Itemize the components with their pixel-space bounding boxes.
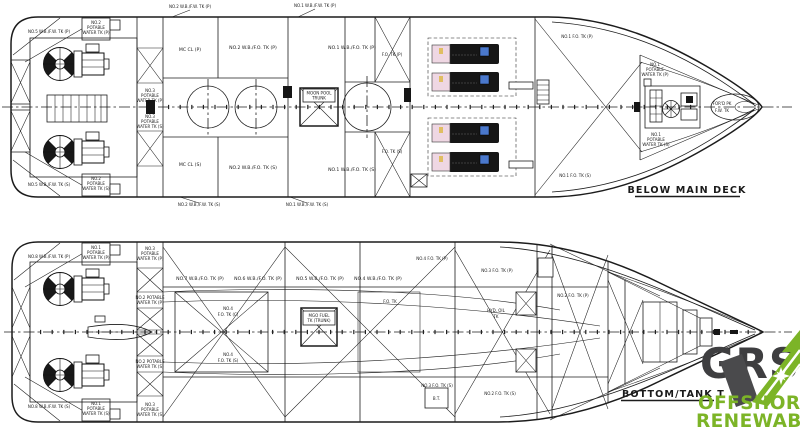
tank-label: NO.2 W.B./F.W. TK (S) — [178, 202, 221, 207]
engine-room — [30, 38, 137, 177]
tank-label: NO.4 W.B./F.O. TK (P) — [354, 276, 402, 282]
tank-label: WATER TK (S) — [136, 364, 164, 369]
tank-label: NO.2 W.B./F.W. TK (P) — [169, 4, 211, 9]
room-label: F.O. TK (S) — [382, 149, 403, 154]
tank-label: NO.3 F.O. TK (P) — [481, 268, 513, 273]
tank-label: TK — [492, 314, 498, 319]
tank-label: FOR'D PK — [713, 101, 732, 106]
room-label: NO.2 W.B./F.O. TK (P) — [229, 45, 277, 51]
tank-label: F.O. TK (S) — [218, 358, 239, 363]
tank-label: F.W. TK — [715, 108, 729, 113]
tank-label: NO.4 — [223, 352, 233, 357]
ladder — [537, 80, 549, 104]
tank-label: WATER TK (S) — [82, 186, 110, 191]
room-label: MC CL (P) — [179, 47, 201, 53]
tank-label: NO.1 F.O. TK (P) — [561, 34, 593, 39]
genset-1 — [432, 44, 499, 64]
room-label: F.O. TK (P) — [382, 52, 403, 57]
moon-pool-label: TRUNK — [311, 96, 326, 101]
tank-label: HYD. OIL — [487, 308, 505, 313]
tank-label: NO.2 F.O. TK (S) — [484, 391, 516, 396]
tank-label: NO.5 W.B./F.W. TK (S) — [28, 182, 71, 187]
grs-tagline-renewables: RENEWABLES — [696, 411, 800, 432]
tank-label: NO.8 W.B./F.W. TK (P) — [28, 254, 70, 259]
tank-label: WATER TK (S) — [136, 412, 164, 417]
tank-label: NO.8 W.B./F.W. TK (S) — [28, 404, 71, 409]
room-label: NO.2 W.B./F.O. TK (S) — [229, 165, 277, 171]
tank-label: NO.1 W.B./F.W. TK (P) — [294, 3, 336, 8]
tank-label: NO.3 F.O. TK (S) — [421, 383, 453, 388]
tank-label: WATER TK (P) — [82, 30, 109, 35]
tank-label: F.O. TK (C) — [218, 312, 239, 317]
tank-label: NO.1 W.B./F.W. TK (S) — [286, 202, 329, 207]
tank-label: NO.7 W.B./F.O. TK (P) — [176, 276, 224, 282]
tank-label: NO.5 W.B./F.O. TK (P) — [296, 276, 344, 282]
tank-label: NO.5 W.B./F.W. TK (P) — [28, 29, 70, 34]
main-engine-stbd — [43, 355, 109, 392]
leader-lines — [172, 9, 315, 203]
room-label: MC CL (S) — [179, 162, 202, 168]
main-engine-port — [43, 44, 109, 81]
room-label: NO.1 W.B./F.O. TK (S) — [328, 167, 376, 173]
genset-3 — [432, 123, 499, 143]
vessel-ga-drawing: NO.2 W.B./F.W. TK (P) NO.1 W.B./F.W. TK … — [0, 0, 800, 434]
windlass-unit — [634, 79, 700, 128]
tank-label: NO.4 — [223, 306, 233, 311]
tank-label: NO.6 W.B./F.O. TK (P) — [234, 276, 282, 282]
tank-label: WATER TK (S) — [136, 124, 164, 129]
grs-logo: GRS OFFSHORE RENEWABLES — [696, 330, 800, 432]
main-engine-stbd — [43, 132, 109, 169]
genset-2 — [432, 72, 499, 92]
mgo-trunk-label: TK (TRUNK) — [306, 318, 331, 323]
tank-label: WATER TK (P) — [136, 256, 163, 261]
main-engine-port — [43, 269, 109, 306]
tank-label: WATER TK (P) — [641, 72, 668, 77]
genset-4 — [432, 152, 499, 172]
tank-label: WATER TK (P) — [82, 255, 109, 260]
bottom-plan: NO.8 W.B./F.W. TK (P) NO.8 W.B./F.W. TK … — [4, 242, 792, 422]
tank-label: NO.2 F.O. TK (P) — [557, 293, 589, 298]
tank-label: WATER TK (S) — [642, 142, 670, 147]
bow-thruster-label: B.T. — [433, 396, 440, 401]
tank-label: WATER TK (P) — [136, 300, 163, 305]
tank-label: WATER TK (P) — [136, 98, 163, 103]
tank-label: NO.4 F.O. TK (P) — [416, 256, 448, 261]
tank-label: F.O. TK — [383, 299, 397, 304]
room-label: NO.1 W.B./F.O. TK (P) — [328, 45, 376, 51]
tank-label: NO.1 F.O. TK (S) — [559, 173, 591, 178]
tank-label: WATER TK (S) — [82, 411, 110, 416]
top-plan-caption: BELOW MAIN DECK — [627, 185, 746, 196]
floor-plates — [47, 95, 107, 122]
top-plan: NO.2 W.B./F.W. TK (P) NO.1 W.B./F.W. TK … — [2, 3, 792, 207]
drawing-canvas: NO.2 W.B./F.W. TK (P) NO.1 W.B./F.W. TK … — [0, 0, 800, 434]
